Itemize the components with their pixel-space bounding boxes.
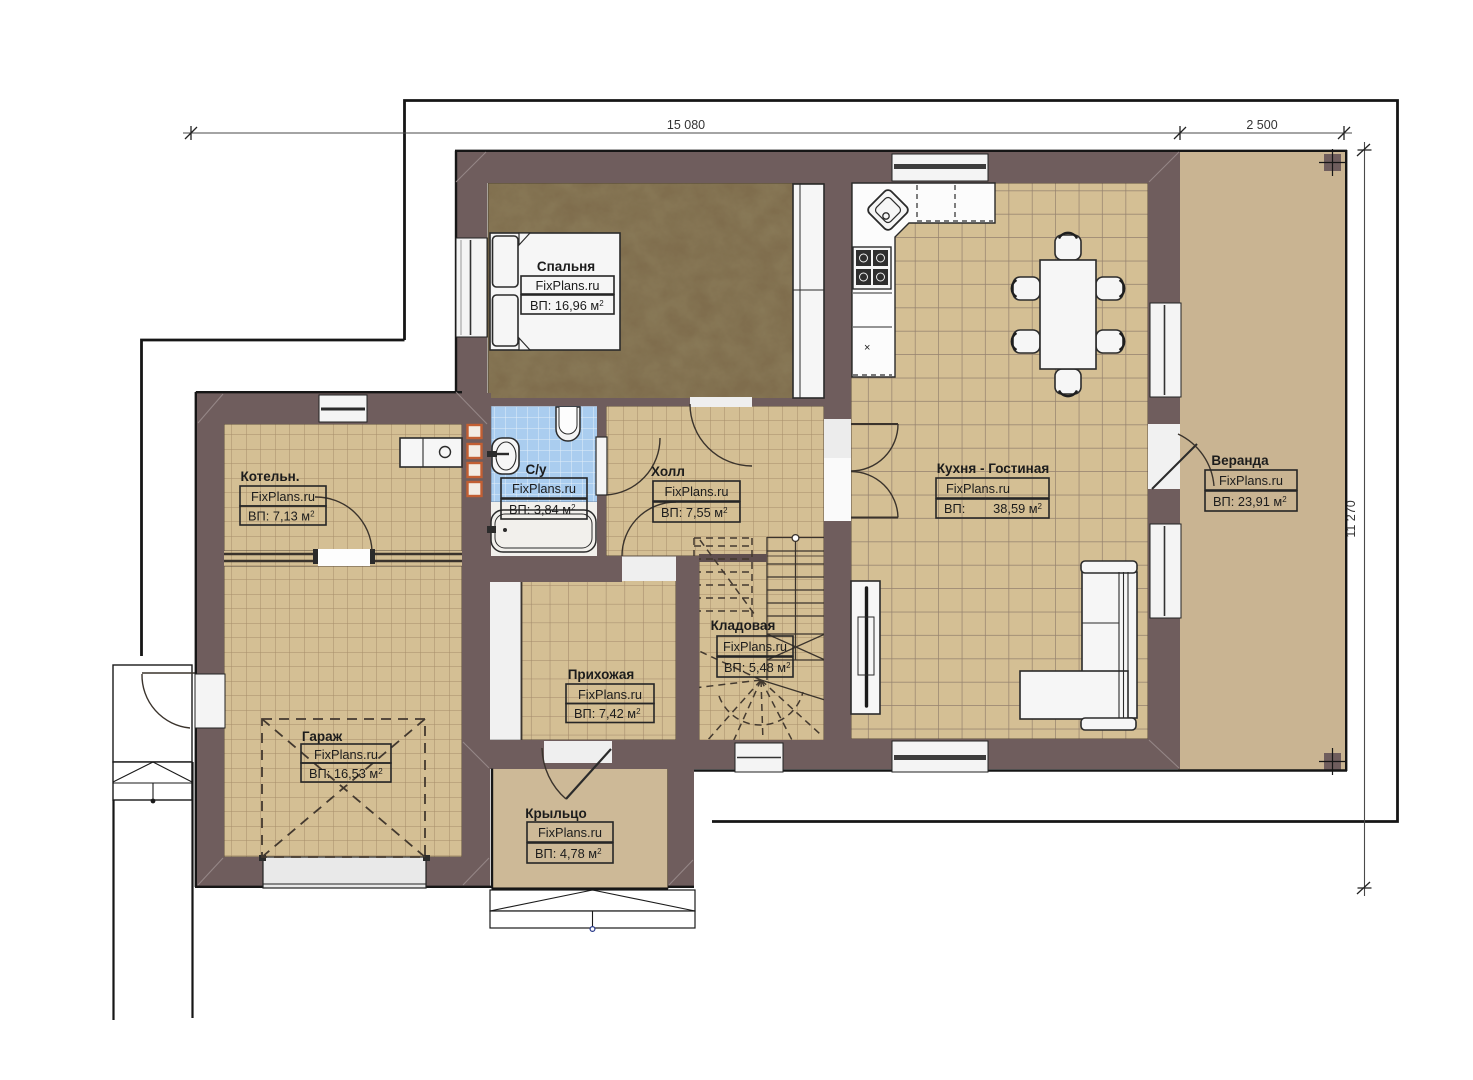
svg-text:ВП:: ВП: <box>944 501 965 516</box>
svg-text:×: × <box>864 342 870 354</box>
svg-text:Спальня: Спальня <box>537 259 595 274</box>
svg-text:FixPlans.ru: FixPlans.ru <box>251 489 315 504</box>
svg-text:FixPlans.ru: FixPlans.ru <box>512 481 576 496</box>
svg-text:Прихожая: Прихожая <box>568 667 635 682</box>
svg-text:FixPlans.ru: FixPlans.ru <box>664 484 728 499</box>
svg-text:ВП: 16,96 м2: ВП: 16,96 м2 <box>530 298 604 313</box>
svg-text:Гараж: Гараж <box>302 729 343 744</box>
svg-text:Кладовая: Кладовая <box>711 618 776 633</box>
svg-text:Холл: Холл <box>651 464 685 479</box>
svg-text:ВП: 16,53 м2: ВП: 16,53 м2 <box>309 766 383 781</box>
svg-text:С/у: С/у <box>525 462 547 477</box>
svg-text:FixPlans.ru: FixPlans.ru <box>314 747 378 762</box>
svg-text:Веранда: Веранда <box>1211 453 1269 468</box>
svg-text:ВП: 4,78 м2: ВП: 4,78 м2 <box>535 846 602 861</box>
svg-text:Котельн.: Котельн. <box>240 469 299 484</box>
svg-text:ВП: 23,91 м2: ВП: 23,91 м2 <box>1213 494 1287 509</box>
svg-text:ВП: 5,48 м2: ВП: 5,48 м2 <box>724 660 791 675</box>
svg-text:2 500: 2 500 <box>1246 118 1277 132</box>
svg-text:38,59 м2: 38,59 м2 <box>993 501 1042 516</box>
svg-text:ВП: 7,42 м2: ВП: 7,42 м2 <box>574 706 641 721</box>
svg-text:FixPlans.ru: FixPlans.ru <box>538 825 602 840</box>
svg-text:ВП: 3,84 м2: ВП: 3,84 м2 <box>509 502 576 517</box>
svg-text:FixPlans.ru: FixPlans.ru <box>946 481 1010 496</box>
svg-text:ВП: 7,13 м2: ВП: 7,13 м2 <box>248 509 315 524</box>
svg-text:ВП: 7,55 м2: ВП: 7,55 м2 <box>661 505 728 520</box>
svg-text:FixPlans.ru: FixPlans.ru <box>535 278 599 293</box>
svg-text:FixPlans.ru: FixPlans.ru <box>1219 473 1283 488</box>
svg-text:Кухня - Гостиная: Кухня - Гостиная <box>937 461 1049 476</box>
svg-text:FixPlans.ru: FixPlans.ru <box>723 639 787 654</box>
svg-text:FixPlans.ru: FixPlans.ru <box>578 687 642 702</box>
svg-text:15 080: 15 080 <box>667 118 705 132</box>
svg-text:Крыльцо: Крыльцо <box>525 806 586 821</box>
